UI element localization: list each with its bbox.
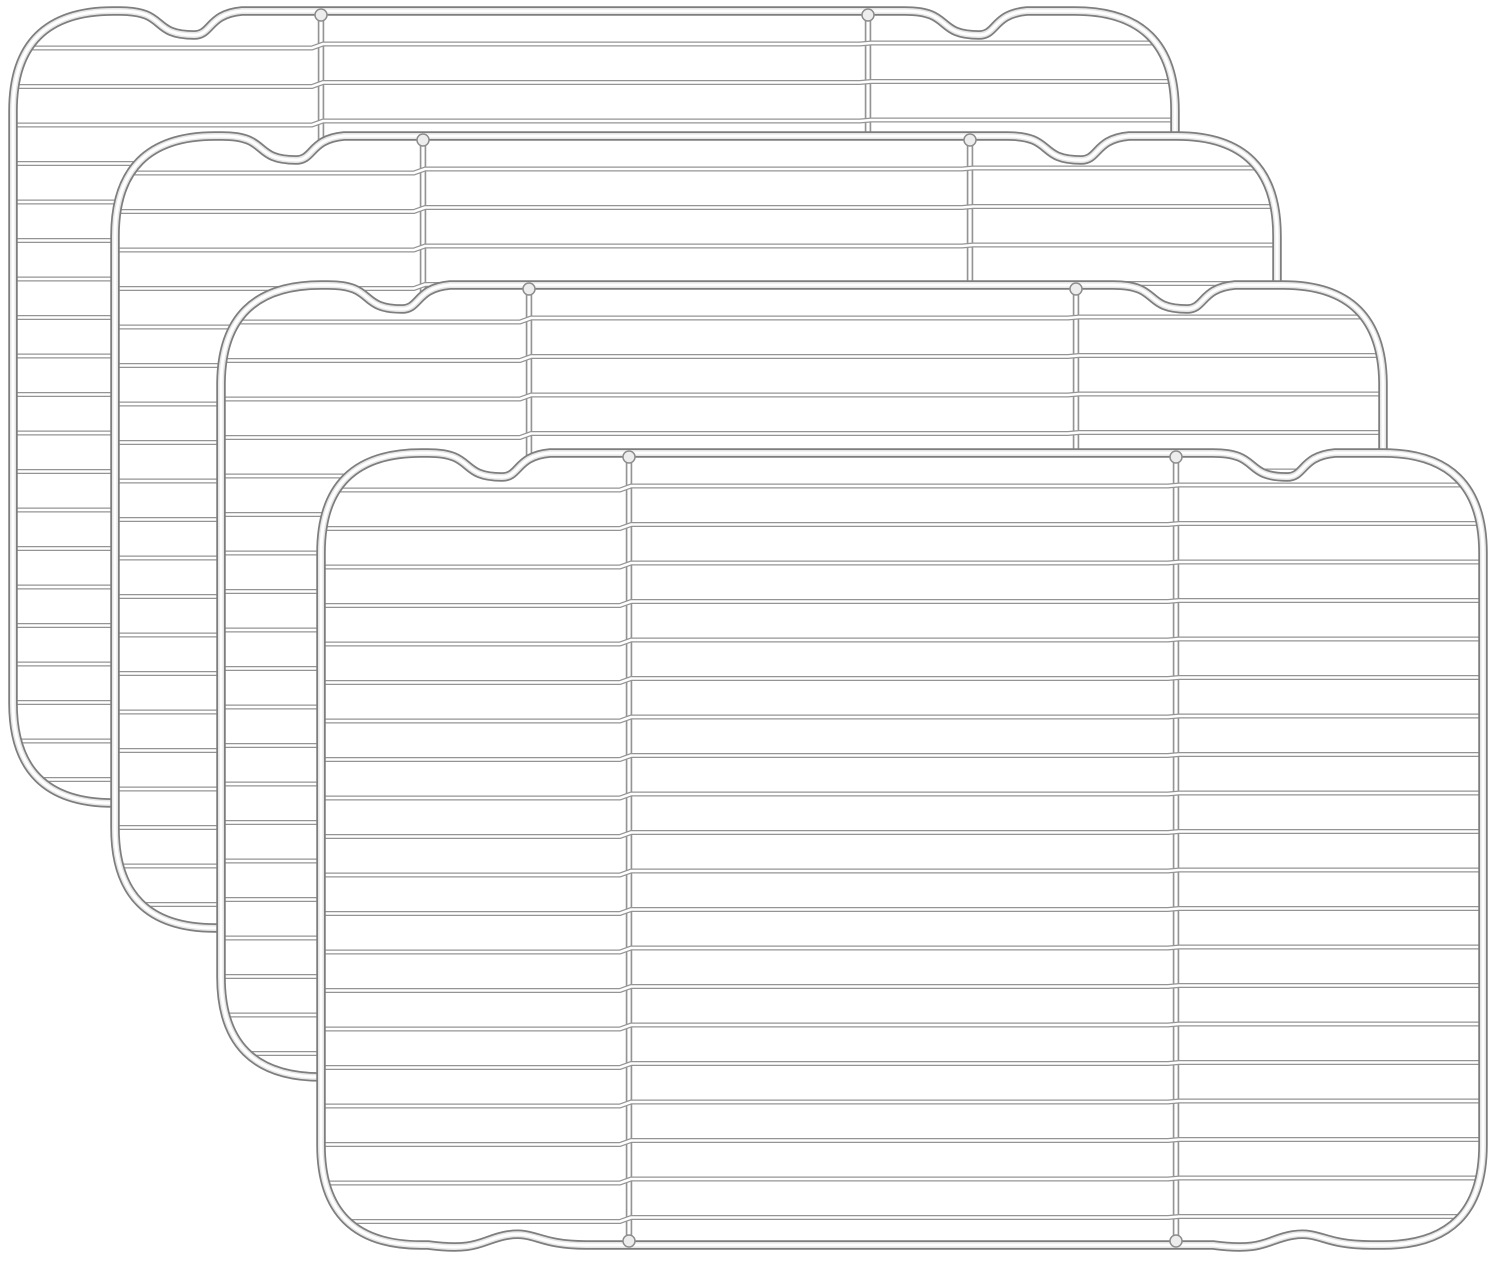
cooling-racks-illustration (0, 0, 1500, 1263)
weld-joint (623, 451, 635, 463)
weld-joint (1170, 1235, 1182, 1247)
weld-joint (523, 283, 535, 295)
cooling-rack-4-front (321, 451, 1483, 1247)
weld-joint (964, 134, 976, 146)
product-photo (0, 0, 1500, 1263)
rack-body-fill (321, 453, 1483, 1247)
weld-joint (862, 9, 874, 21)
weld-joint (623, 1235, 635, 1247)
weld-joint (315, 9, 327, 21)
weld-joint (1070, 283, 1082, 295)
weld-joint (1170, 451, 1182, 463)
weld-joint (417, 134, 429, 146)
